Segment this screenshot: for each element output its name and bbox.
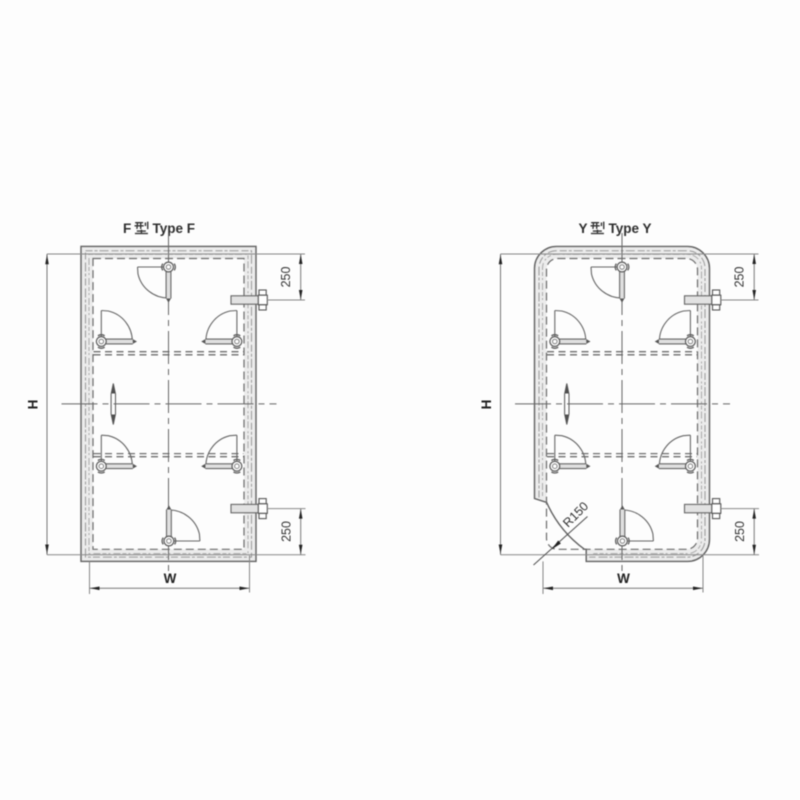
svg-text:Y: Y [579,221,588,236]
svg-text:H: H [26,400,41,410]
svg-text:F: F [123,221,131,236]
svg-text:Type Y: Type Y [609,221,652,236]
svg-text:W: W [164,571,177,586]
svg-text:250: 250 [733,267,747,288]
svg-text:250: 250 [280,521,294,542]
svg-text:W: W [617,571,630,586]
svg-text:250: 250 [279,267,293,288]
svg-text:H: H [479,400,494,410]
svg-text:Type F: Type F [153,221,196,236]
svg-text:250: 250 [733,521,747,542]
